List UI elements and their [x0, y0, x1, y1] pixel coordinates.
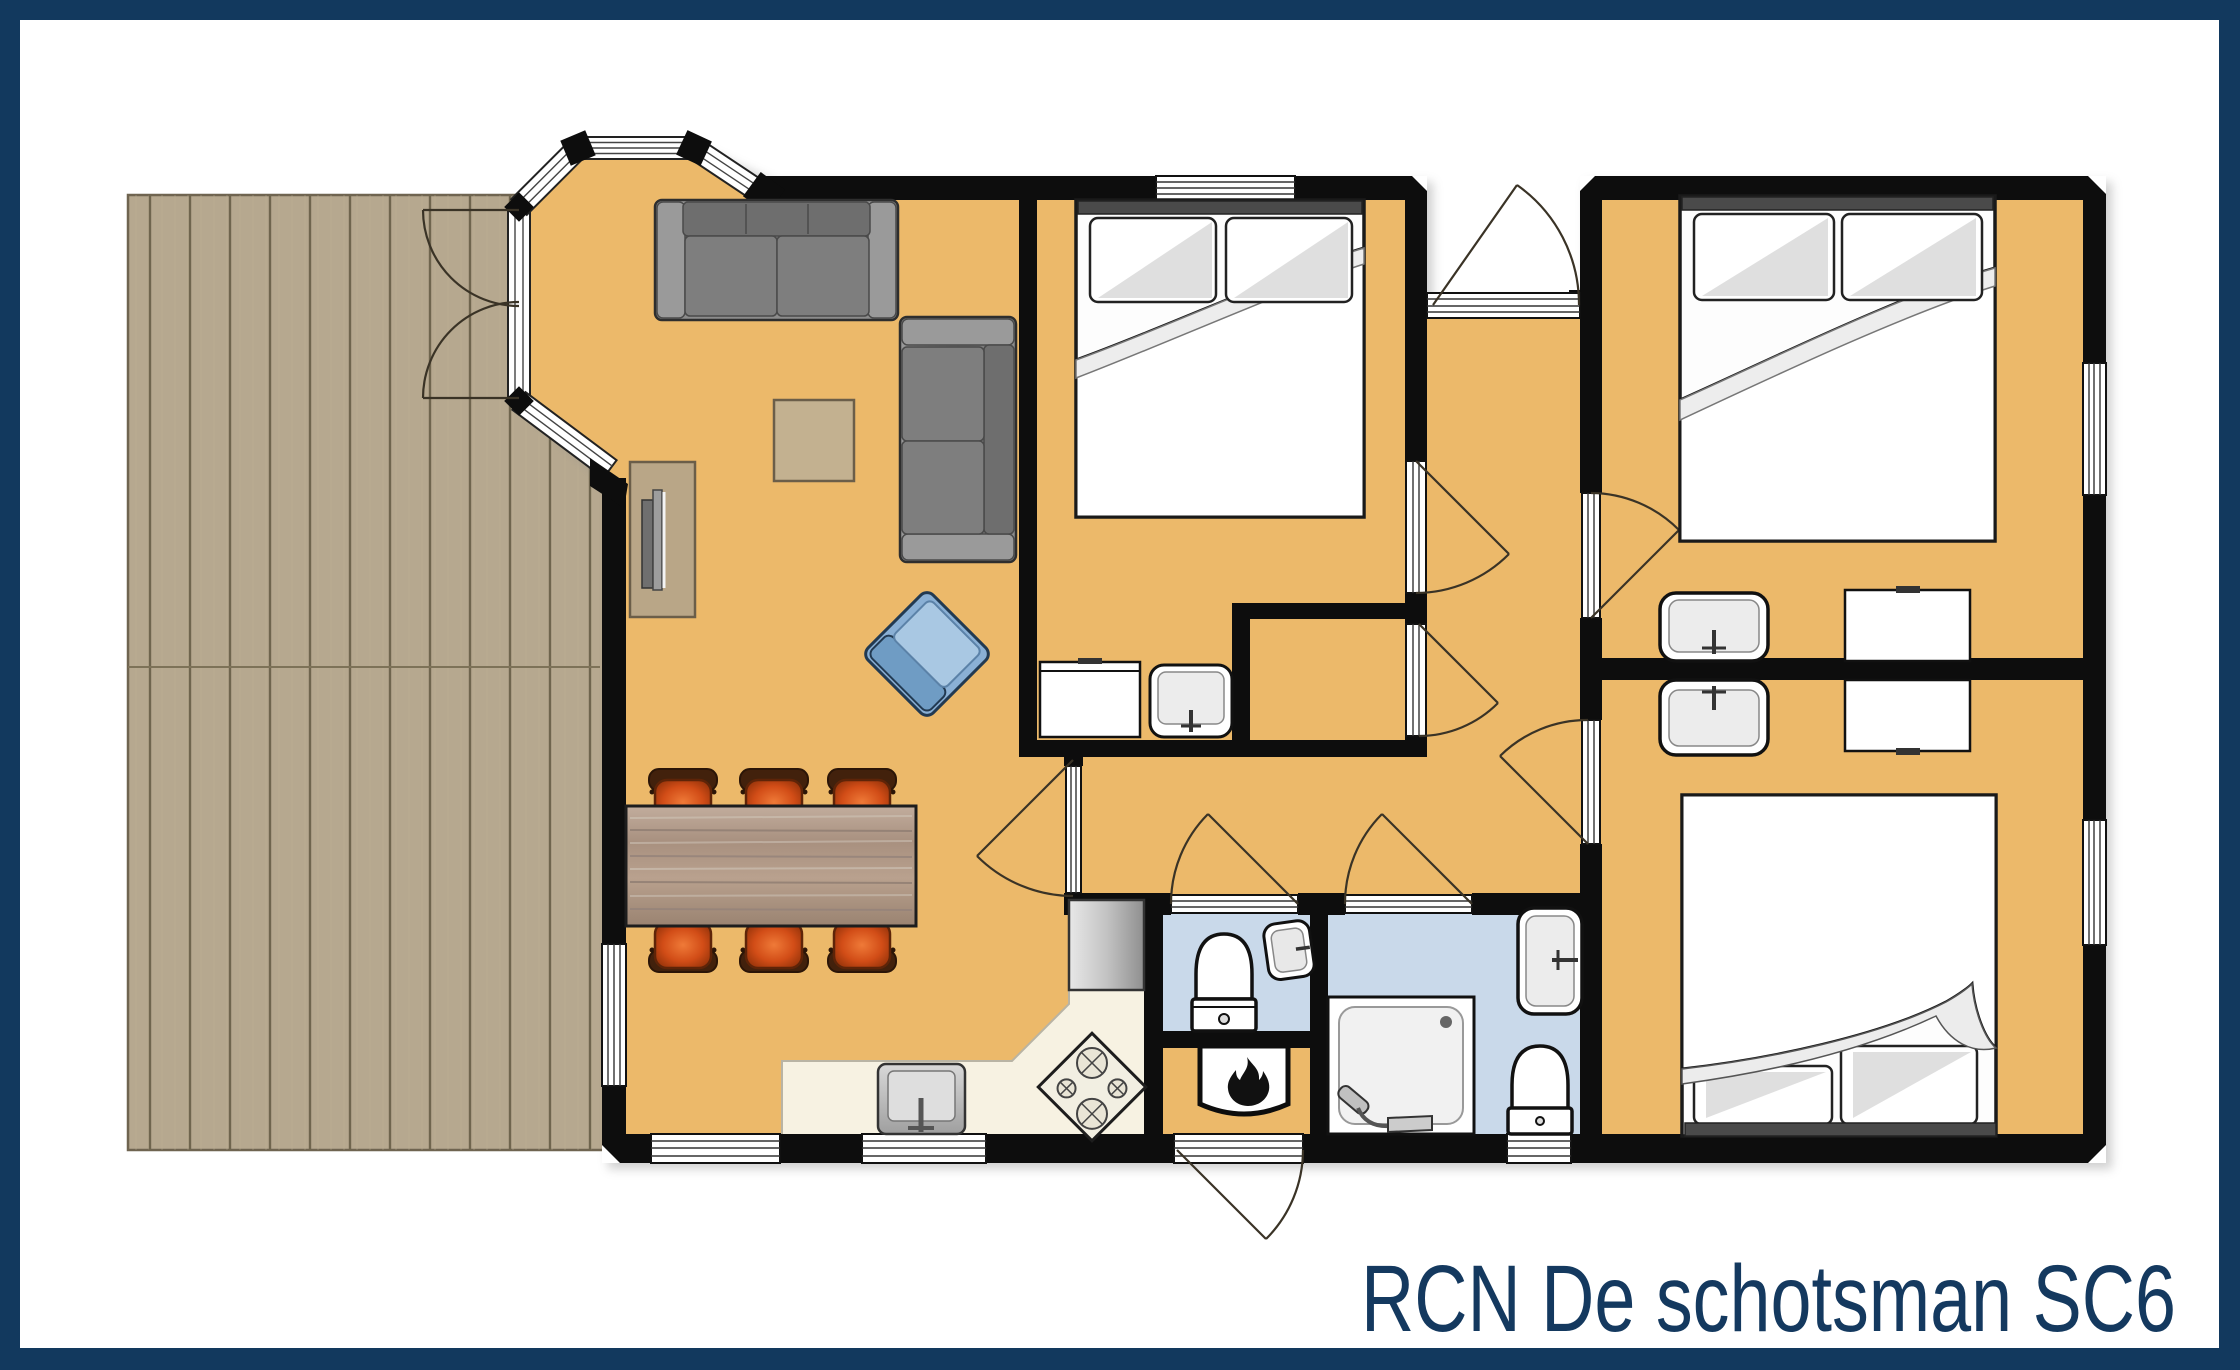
- svg-text:RCN De schotsman SC6: RCN De schotsman SC6: [1361, 1246, 2176, 1352]
